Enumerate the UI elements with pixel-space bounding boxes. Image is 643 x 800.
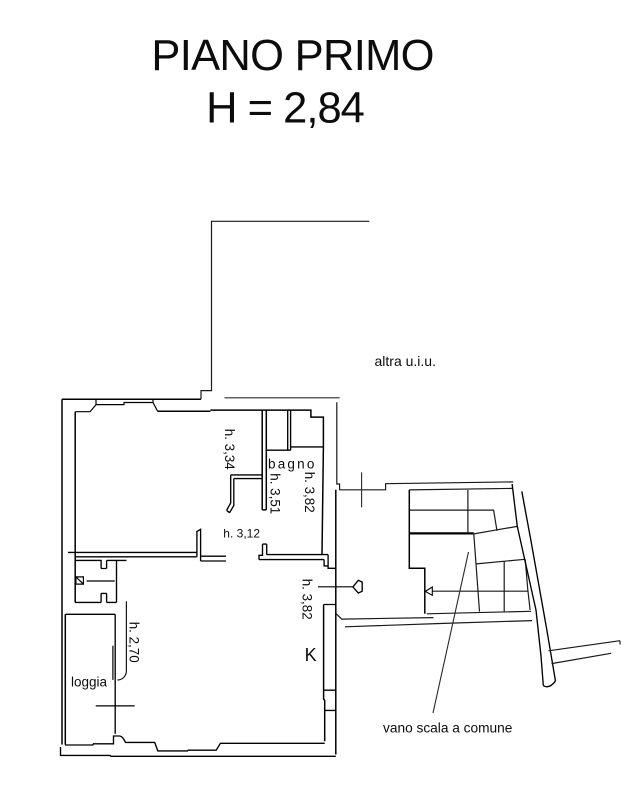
svg-text:vano scala a comune: vano scala a comune bbox=[383, 720, 512, 735]
svg-text:h. 3,51: h. 3,51 bbox=[267, 473, 282, 514]
svg-text:h. 3,82: h. 3,82 bbox=[299, 579, 314, 620]
svg-text:h. 2,70: h. 2,70 bbox=[126, 622, 141, 663]
svg-text:h. 3,34: h. 3,34 bbox=[222, 429, 237, 471]
svg-text:H = 2,84: H = 2,84 bbox=[206, 85, 364, 133]
svg-text:K: K bbox=[305, 645, 317, 665]
svg-text:bagno: bagno bbox=[268, 457, 317, 472]
svg-text:loggia: loggia bbox=[71, 675, 108, 690]
svg-text:altra u.i.u.: altra u.i.u. bbox=[375, 353, 436, 369]
svg-text:h. 3,82: h. 3,82 bbox=[302, 472, 317, 513]
svg-text:PIANO PRIMO: PIANO PRIMO bbox=[151, 32, 433, 80]
svg-text:h. 3,12: h. 3,12 bbox=[223, 527, 260, 541]
